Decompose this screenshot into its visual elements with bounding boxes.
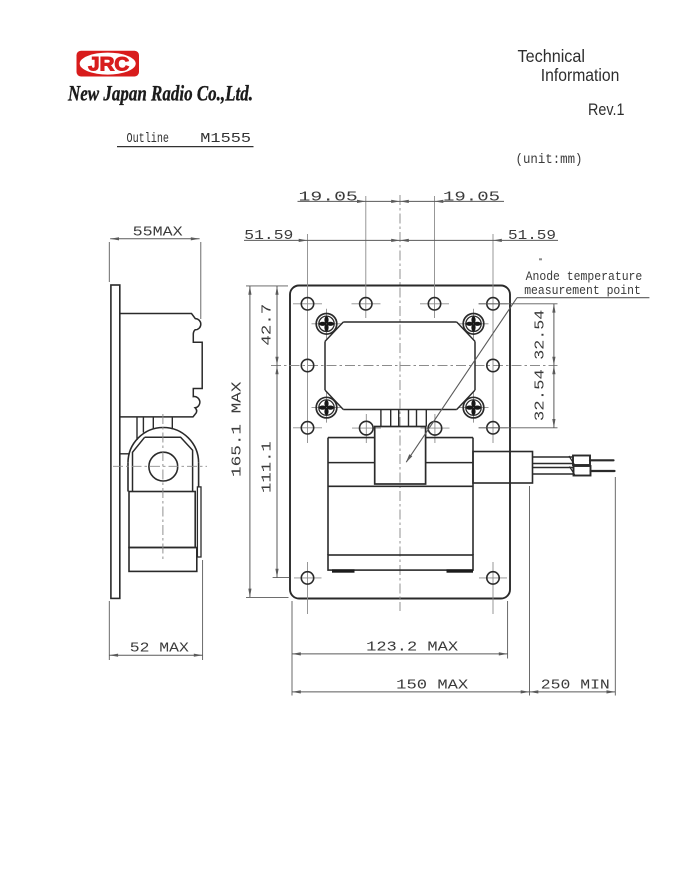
svg-text:JRC: JRC [88,54,129,76]
svg-text:51.59: 51.59 [508,229,556,244]
svg-text:(unit:mm): (unit:mm) [516,153,583,168]
svg-text:Information: Information [541,65,620,85]
svg-text:165.1 MAX: 165.1 MAX [231,382,246,478]
svg-text:Technical: Technical [518,46,586,66]
svg-text:19.05: 19.05 [299,190,358,205]
svg-text:51.59: 51.59 [244,229,293,244]
svg-text:19.05: 19.05 [443,190,500,205]
svg-text:52 MAX: 52 MAX [130,642,189,657]
svg-text:Outline: Outline [127,131,170,147]
svg-text:150 MAX: 150 MAX [396,679,468,694]
svg-text:123.2 MAX: 123.2 MAX [366,641,458,656]
svg-text:111.1: 111.1 [260,441,275,493]
svg-text:New Japan Radio Co.,Ltd.: New Japan Radio Co.,Ltd. [67,81,253,106]
svg-text:measurement point: measurement point [524,283,641,298]
svg-text:M1555: M1555 [200,131,251,147]
svg-text:250 MIN: 250 MIN [541,679,610,694]
svg-text:42.7: 42.7 [260,304,275,346]
svg-text:Anode temperature: Anode temperature [526,269,643,284]
svg-text:32.54: 32.54 [534,369,549,421]
svg-text:32.54: 32.54 [534,310,549,360]
svg-text:Rev.1: Rev.1 [588,101,625,119]
svg-text:55MAX: 55MAX [133,225,183,240]
